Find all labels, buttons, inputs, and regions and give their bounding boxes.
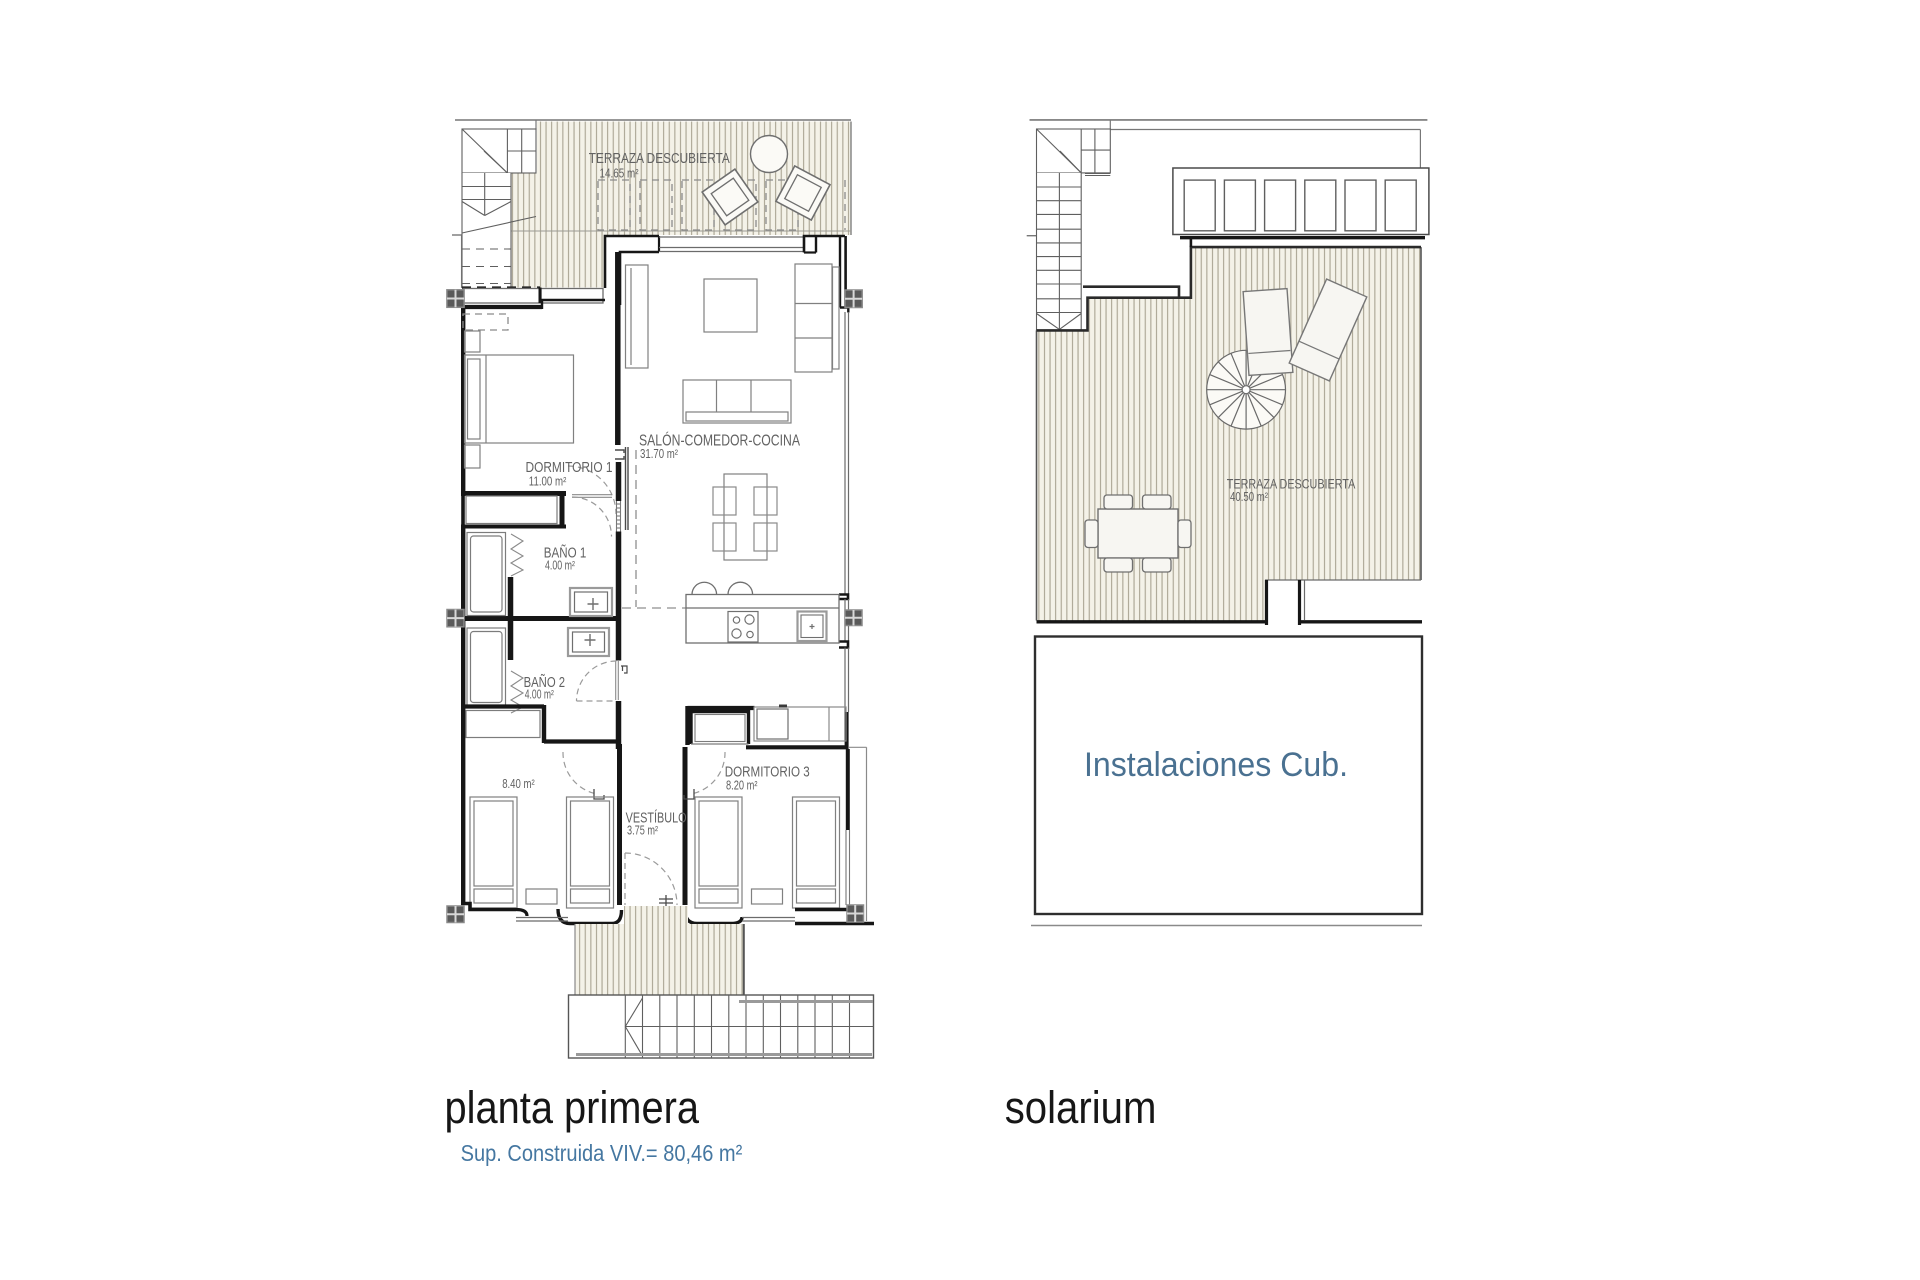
svg-text:14.65 m²: 14.65 m² — [600, 166, 640, 181]
svg-text:Sup. Construida VIV.= 80,46 m²: Sup. Construida VIV.= 80,46 m² — [461, 1140, 743, 1166]
svg-text:40.50 m²: 40.50 m² — [1230, 489, 1268, 504]
svg-text:planta primera: planta primera — [445, 1082, 700, 1133]
svg-text:3.75 m²: 3.75 m² — [627, 823, 658, 838]
svg-text:31.70 m²: 31.70 m² — [640, 446, 678, 461]
svg-text:8.20 m²: 8.20 m² — [726, 778, 758, 793]
svg-text:11.00 m²: 11.00 m² — [529, 474, 567, 489]
svg-text:4.00 m²: 4.00 m² — [525, 687, 554, 702]
svg-text:8.40 m²: 8.40 m² — [502, 776, 535, 791]
svg-text:Instalaciones Cub.: Instalaciones Cub. — [1084, 746, 1348, 784]
svg-text:solarium: solarium — [1005, 1082, 1157, 1133]
svg-text:4.00 m²: 4.00 m² — [545, 558, 575, 573]
